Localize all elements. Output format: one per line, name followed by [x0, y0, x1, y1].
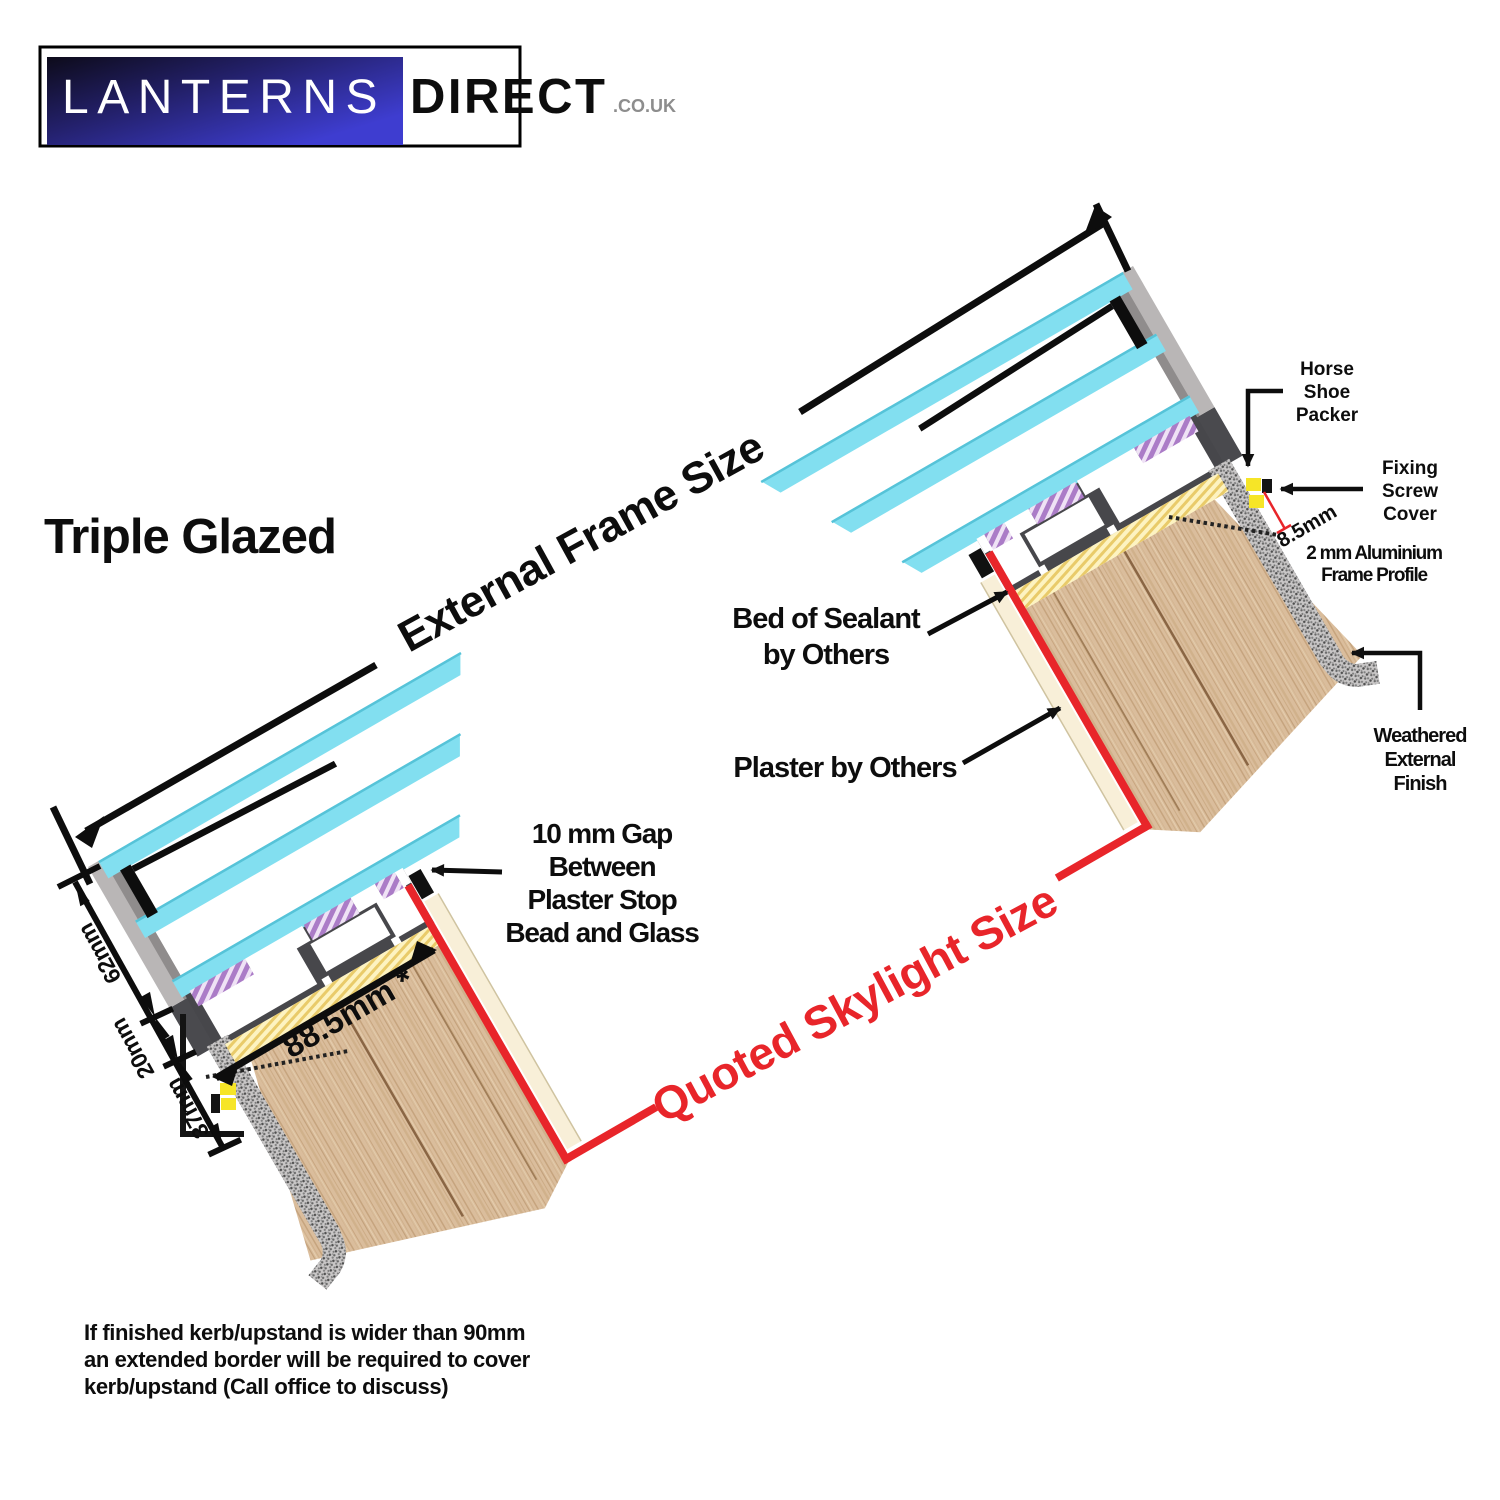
svg-text:2 mm Aluminium: 2 mm Aluminium	[1306, 543, 1442, 564]
svg-text:DIRECT: DIRECT	[410, 70, 607, 124]
svg-text:Triple Glazed: Triple Glazed	[44, 510, 336, 564]
svg-text:kerb/upstand (Call office to d: kerb/upstand (Call office to discuss)	[84, 1374, 448, 1399]
svg-text:Screw: Screw	[1382, 481, 1438, 502]
svg-text:Fixing: Fixing	[1382, 458, 1438, 479]
svg-text:Bed of Sealant: Bed of Sealant	[732, 603, 921, 635]
svg-text:10 mm Gap: 10 mm Gap	[532, 818, 672, 849]
svg-text:Finish: Finish	[1394, 773, 1447, 795]
svg-text:External: External	[1385, 749, 1456, 771]
svg-text:by Others: by Others	[763, 639, 889, 671]
svg-text:Packer: Packer	[1296, 405, 1359, 426]
svg-text:Plaster Stop: Plaster Stop	[528, 884, 677, 915]
svg-text:Plaster by Others: Plaster by Others	[733, 752, 956, 784]
svg-text:Between: Between	[549, 851, 656, 882]
svg-text:Weathered: Weathered	[1374, 725, 1467, 747]
svg-text:Bead and Glass: Bead and Glass	[505, 917, 699, 948]
svg-text:Cover: Cover	[1383, 504, 1437, 525]
svg-text:LANTERNS: LANTERNS	[62, 71, 386, 124]
svg-text:If finished kerb/upstand is wi: If finished kerb/upstand is wider than 9…	[84, 1320, 525, 1345]
svg-text:an extended border will be req: an extended border will be required to c…	[84, 1347, 531, 1372]
svg-text:.CO.UK: .CO.UK	[613, 96, 676, 116]
svg-text:Shoe: Shoe	[1304, 382, 1350, 403]
svg-text:Horse: Horse	[1300, 359, 1354, 380]
svg-text:Frame Profile: Frame Profile	[1321, 565, 1427, 586]
